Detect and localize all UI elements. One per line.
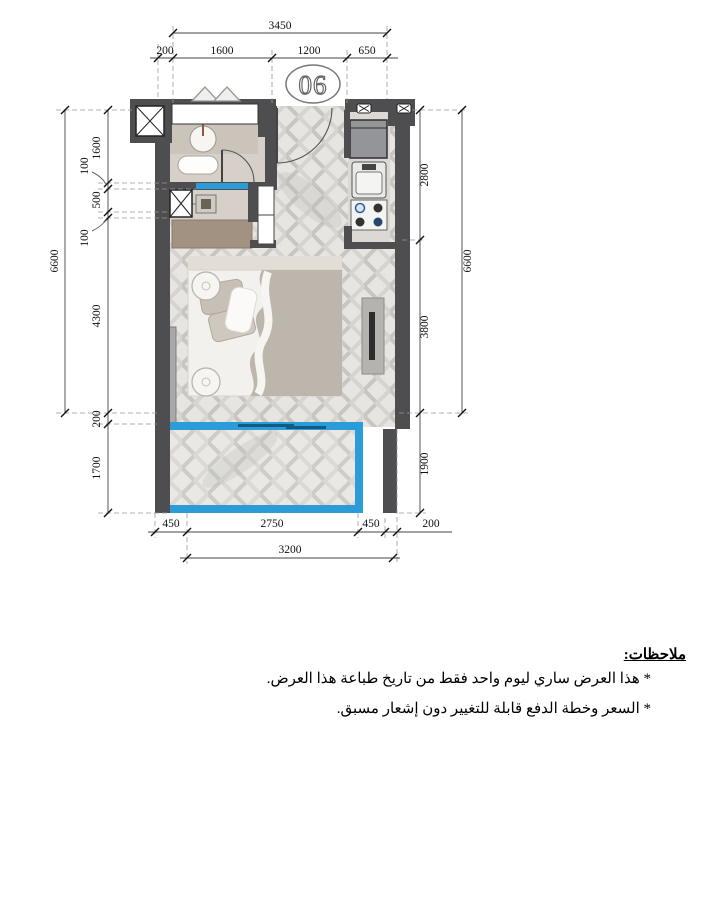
column-icon [170,190,192,217]
dimensions-top: 3450 200 1600 1200 650 [150,20,398,104]
note-line-2: * السعر وخطة الدفع قابلة للتغيير دون إشع… [0,698,651,721]
sliding-door-handle [286,426,326,429]
glass-strip [196,183,254,189]
dim-left-200: 200 [91,410,103,428]
dim-right-total: 6600 [462,249,474,272]
column-icon [136,106,164,136]
dim-left-1600: 1600 [91,136,103,159]
tan-wardrobe [172,220,252,248]
socket-icon [357,104,371,113]
dim-bottom-total: 3200 [279,544,302,556]
wall-kitchen-stub-top [344,110,350,158]
floor-plan: 06 3450 200 1600 1200 650 6600 [0,0,710,620]
notes-heading: ملاحظات: [0,645,686,664]
wardrobe-top [172,104,258,124]
dim-left-100b: 100 [79,229,91,247]
dim-top-650: 650 [358,45,376,57]
dim-right-2800: 2800 [419,163,431,186]
dim-left-500: 500 [91,191,103,209]
wall-left [155,99,170,513]
bed-headboard [188,256,342,270]
dim-right-1900: 1900 [419,452,431,475]
dim-top-total: 3450 [269,20,292,32]
unit-number: 06 [299,70,328,100]
note-line-1: * هذا العرض ساري ليوم واحد فقط من تاريخ … [0,668,651,691]
dim-bottom-450a: 450 [162,518,180,530]
dim-left-1700: 1700 [91,456,103,479]
fridge-icon [350,120,387,158]
dim-right-3800: 3800 [419,315,431,338]
dim-bottom-450b: 450 [362,518,380,530]
dim-top-200: 200 [156,45,174,57]
dim-bottom-200: 200 [422,518,440,530]
wall-laundry-right [248,182,258,222]
nightstand [192,272,220,300]
dim-top-1600: 1600 [211,45,234,57]
bathroom [170,118,265,182]
page: 06 3450 200 1600 1200 650 6600 [0,0,710,905]
dim-top-1200: 1200 [298,45,321,57]
balcony-rail-bottom [170,505,363,513]
dimensions-right: 2800 3800 1900 6600 [399,106,474,517]
dim-left-100a: 100 [79,157,91,175]
dim-left-total: 6600 [49,249,61,272]
washer-drum [201,199,211,209]
hanger-icon [214,87,240,101]
wall-kitchen-bottom [344,242,395,249]
hanger-icon [192,87,218,101]
tall-cabinet [258,186,274,215]
wall-right-balcony-stub [383,429,397,513]
nightstand [192,368,220,396]
notes-section: ملاحظات: * هذا العرض ساري ليوم واحد فقط … [0,645,698,729]
wall-right [395,99,410,429]
sliding-door-handle [238,424,294,427]
tall-cabinet [258,215,274,244]
sink-faucet [362,164,376,170]
balcony-rail-right [355,422,363,513]
wall-bathroom-right [265,106,277,185]
kitchen [348,108,390,244]
dim-bottom-2750: 2750 [261,518,284,530]
toilet-icon [178,156,218,174]
dim-left-4300: 4300 [91,304,103,327]
socket-icon [397,104,411,113]
